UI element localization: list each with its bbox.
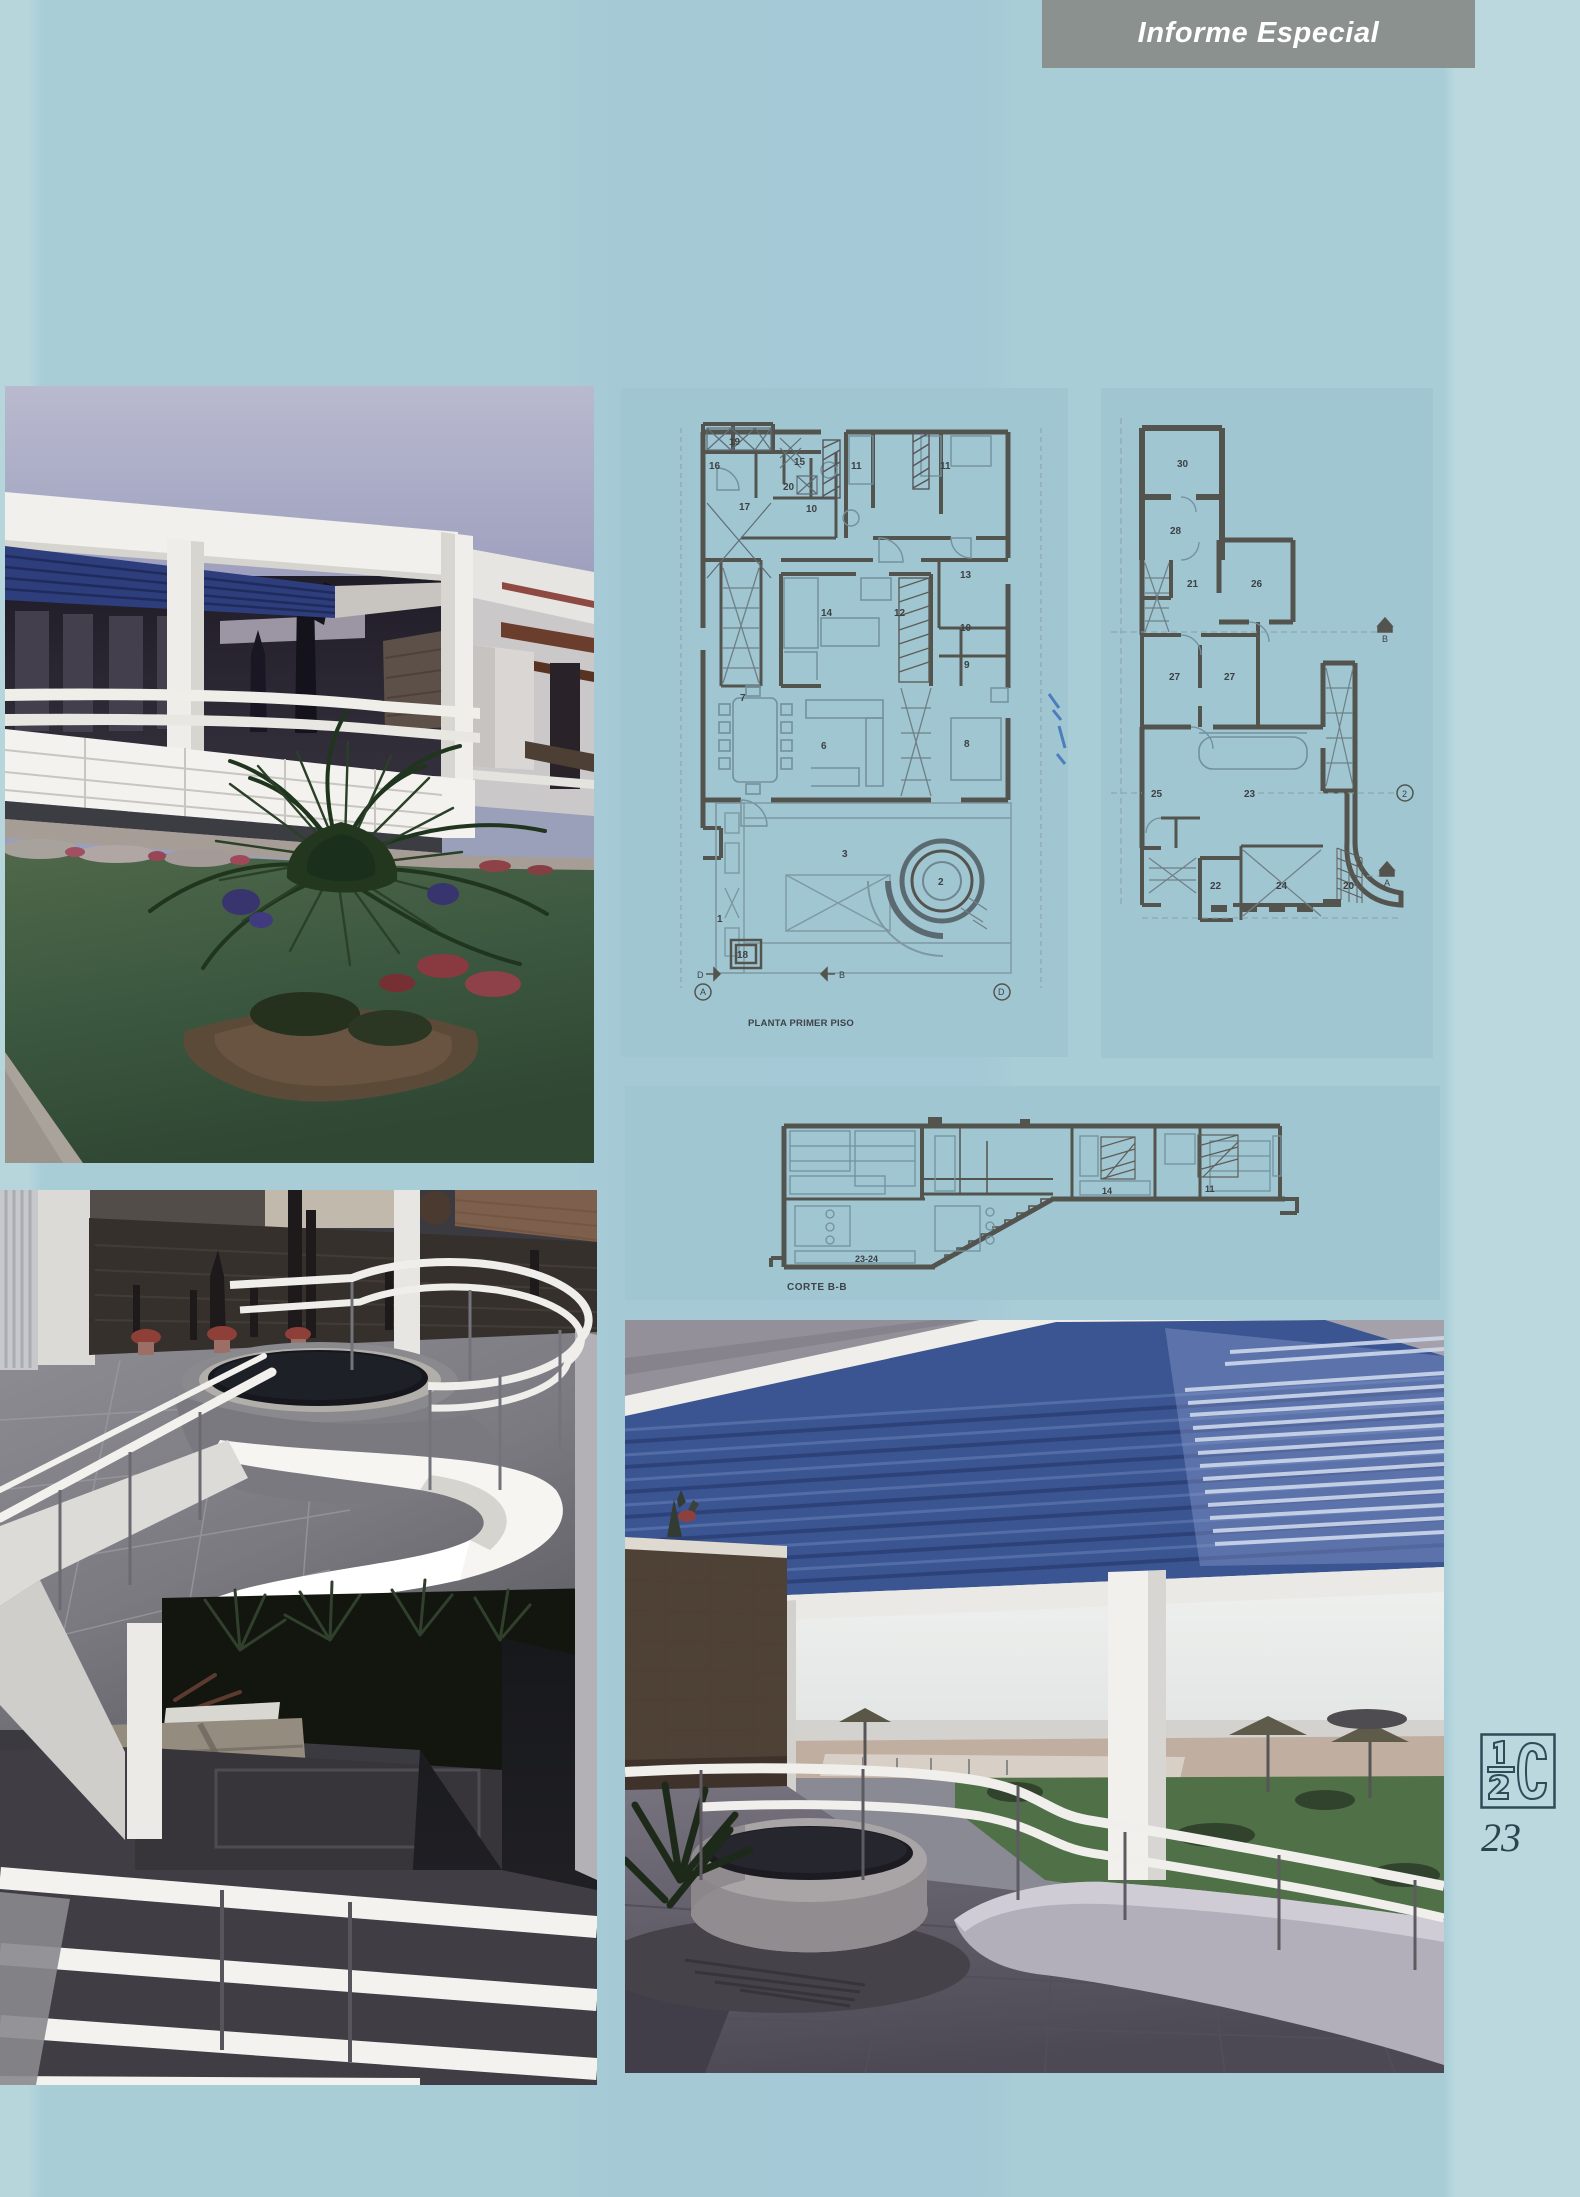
svg-text:11: 11 — [940, 461, 951, 472]
svg-text:12: 12 — [894, 608, 906, 619]
svg-text:A: A — [1384, 878, 1390, 888]
svg-text:2: 2 — [1402, 789, 1407, 799]
svg-text:23: 23 — [1244, 789, 1256, 800]
svg-text:18: 18 — [737, 950, 749, 961]
svg-text:1: 1 — [717, 914, 723, 925]
svg-text:19: 19 — [729, 437, 741, 448]
svg-text:25: 25 — [1151, 789, 1163, 800]
svg-text:27: 27 — [1169, 672, 1181, 683]
svg-text:B: B — [839, 970, 845, 980]
svg-text:10: 10 — [960, 623, 972, 634]
svg-text:17: 17 — [739, 502, 751, 513]
svg-text:7: 7 — [740, 693, 746, 704]
svg-text:15: 15 — [794, 457, 806, 468]
svg-text:B: B — [1382, 634, 1388, 644]
svg-text:27: 27 — [1224, 672, 1236, 683]
svg-text:2: 2 — [938, 877, 944, 888]
svg-text:9: 9 — [964, 660, 970, 671]
svg-text:30: 30 — [1177, 459, 1189, 470]
svg-text:11: 11 — [1205, 1184, 1215, 1194]
svg-text:16: 16 — [709, 461, 721, 472]
svg-text:PLANTA PRIMER PISO: PLANTA PRIMER PISO — [748, 1018, 854, 1029]
svg-text:3: 3 — [842, 849, 848, 860]
svg-text:20: 20 — [1343, 881, 1355, 892]
svg-text:14: 14 — [821, 608, 833, 619]
svg-text:28: 28 — [1170, 526, 1182, 537]
svg-text:6: 6 — [821, 741, 827, 752]
svg-text:24: 24 — [1276, 881, 1288, 892]
svg-text:D: D — [998, 987, 1005, 997]
svg-text:23-24: 23-24 — [855, 1254, 878, 1264]
svg-text:22: 22 — [1210, 881, 1222, 892]
svg-text:CORTE B-B: CORTE B-B — [787, 1282, 847, 1293]
svg-text:20: 20 — [783, 482, 795, 493]
svg-text:8: 8 — [964, 739, 970, 750]
svg-text:13: 13 — [960, 570, 972, 581]
svg-text:21: 21 — [1187, 579, 1199, 590]
svg-text:26: 26 — [1251, 579, 1263, 590]
svg-text:11: 11 — [851, 461, 862, 472]
svg-text:D: D — [697, 970, 704, 980]
svg-text:10: 10 — [806, 504, 818, 515]
svg-text:14: 14 — [1102, 1186, 1112, 1196]
svg-text:A: A — [700, 987, 706, 997]
